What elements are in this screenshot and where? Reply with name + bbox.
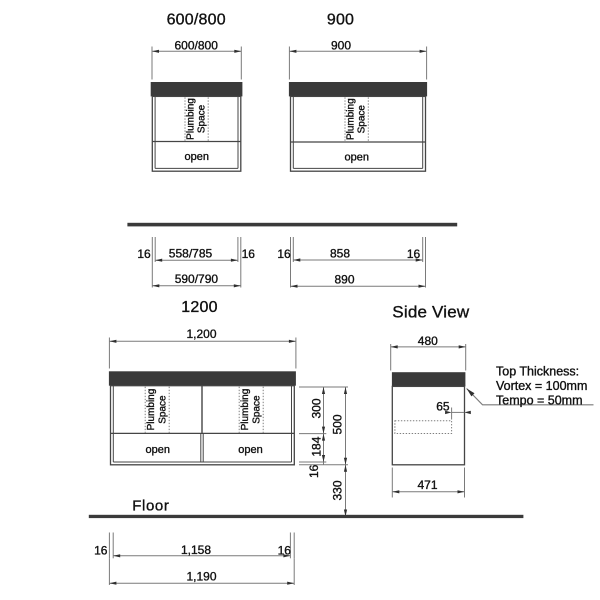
svg-text:890: 890 (334, 272, 354, 286)
svg-text:Space: Space (251, 395, 262, 424)
svg-text:open: open (146, 444, 170, 456)
svg-text:16: 16 (94, 543, 108, 557)
svg-text:Space: Space (357, 105, 368, 134)
svg-text:Space: Space (157, 395, 168, 424)
svg-text:open: open (345, 151, 369, 163)
svg-text:558/785: 558/785 (169, 246, 213, 260)
svg-text:Top Thickness:: Top Thickness: (496, 365, 579, 379)
svg-text:16: 16 (137, 247, 151, 261)
svg-text:open: open (238, 444, 262, 456)
svg-text:1,200: 1,200 (186, 327, 216, 341)
svg-text:600/800: 600/800 (167, 12, 226, 29)
svg-text:500: 500 (331, 414, 345, 434)
svg-text:16: 16 (407, 247, 421, 261)
svg-text:330: 330 (331, 480, 345, 500)
svg-text:16: 16 (242, 247, 256, 261)
svg-text:Floor: Floor (132, 498, 169, 515)
svg-text:300: 300 (310, 398, 324, 418)
svg-text:Side View: Side View (392, 302, 470, 321)
svg-text:858: 858 (330, 246, 350, 260)
svg-text:Space: Space (197, 104, 208, 133)
svg-text:65: 65 (436, 399, 450, 413)
svg-text:184: 184 (310, 436, 324, 456)
svg-text:16: 16 (307, 464, 321, 478)
svg-text:Tempo = 50mm: Tempo = 50mm (496, 393, 583, 407)
svg-text:16: 16 (278, 543, 292, 557)
svg-text:590/790: 590/790 (175, 272, 219, 286)
svg-text:900: 900 (327, 12, 354, 29)
svg-text:Vortex = 100mm: Vortex = 100mm (496, 379, 587, 393)
svg-text:1200: 1200 (181, 299, 217, 316)
svg-text:1,158: 1,158 (181, 543, 211, 557)
svg-text:1,190: 1,190 (186, 570, 216, 584)
svg-text:open: open (185, 151, 209, 163)
svg-text:Plumbing: Plumbing (240, 389, 251, 431)
svg-text:16: 16 (277, 247, 291, 261)
svg-text:Plumbing: Plumbing (146, 389, 157, 431)
svg-text:Plumbing: Plumbing (186, 98, 197, 140)
svg-text:Plumbing: Plumbing (346, 98, 357, 140)
svg-text:471: 471 (417, 478, 437, 492)
svg-text:900: 900 (331, 39, 351, 53)
svg-text:600/800: 600/800 (175, 39, 219, 53)
svg-text:480: 480 (418, 334, 438, 348)
